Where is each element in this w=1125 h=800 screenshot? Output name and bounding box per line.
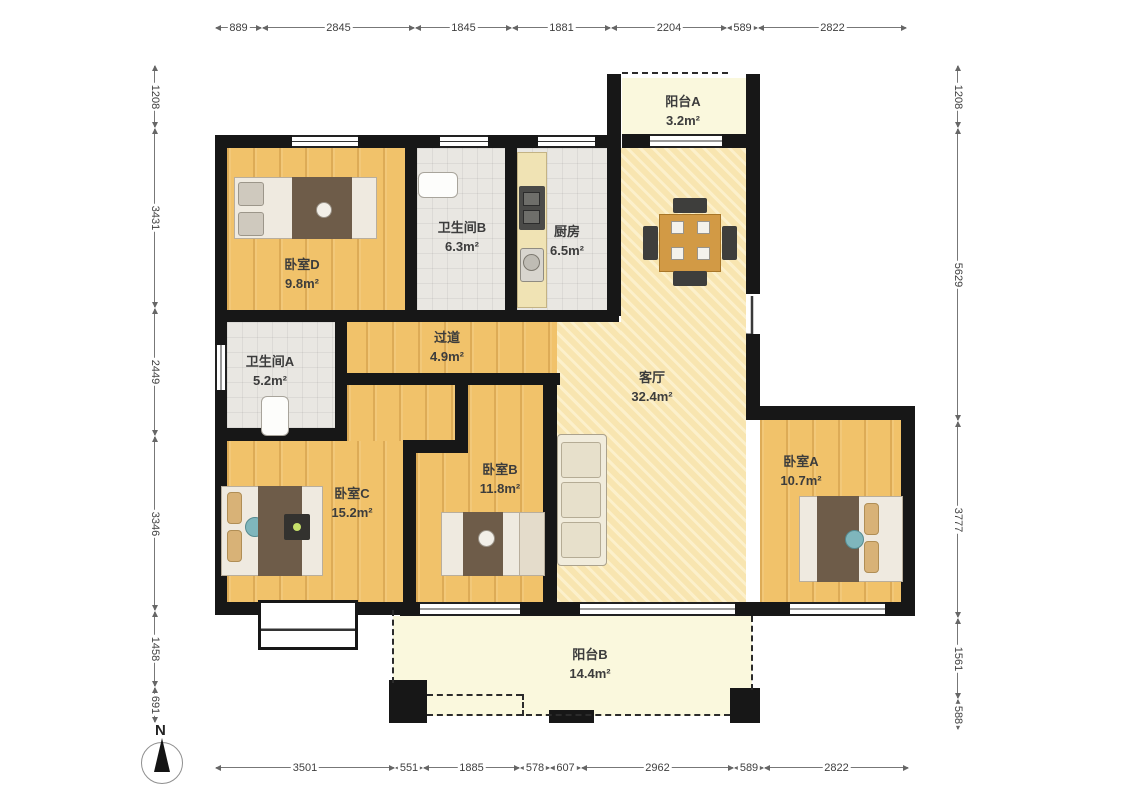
dimension-right-1561: 1561 [951,618,965,699]
window-balcony-a-slider [650,134,722,148]
dimension-bottom-1885: 1885 [423,761,520,775]
chair-icon [673,271,707,286]
dimension-value: 5629 [952,260,964,288]
dimension-value: 578 [524,762,546,774]
dimension-value: 3346 [149,509,161,537]
kitchen-counter [517,152,547,308]
room-area: 6.5m² [550,241,584,260]
floor-plan: N 阳台A3.2m²卧室D9.8m²卫生间B6.3m²厨房6.5m²过道4.9m… [0,0,1125,800]
dimension-bottom-2962: 2962 [581,761,734,775]
bay-window-bedroom-c [258,600,358,650]
wall [730,688,760,723]
railing-balcony-b-step [427,694,522,696]
wall [403,440,468,453]
dining-table [659,214,721,272]
wall [221,310,619,322]
dimension-value: 2822 [818,22,846,34]
railing-balcony-b-step [522,694,524,716]
room-label-kitchen: 厨房6.5m² [550,222,584,260]
dimension-value: 1885 [457,762,485,774]
dimension-bottom-3501: 3501 [215,761,395,775]
dot-icon [293,523,301,531]
room-name: 卧室D [284,255,319,274]
dimension-value: 691 [149,694,161,716]
dimension-left-3346: 3346 [148,436,162,611]
wall [746,74,760,294]
window-living-slider [580,602,735,616]
dimension-value: 1208 [149,82,161,110]
window-bedroom-b-bottom [420,602,520,616]
dimension-value: 589 [731,22,753,34]
dimension-top-2822: 2822 [758,21,907,35]
room-label-bedroom-a: 卧室A10.7m² [780,452,821,490]
dimension-value: 607 [554,762,576,774]
dimension-left-1208: 1208 [148,65,162,128]
room-name: 卫生间A [246,352,294,371]
room-area: 10.7m² [780,471,821,490]
room-area: 5.2m² [246,371,294,390]
dimension-value: 2449 [149,358,161,386]
room-name: 阳台A [665,92,700,111]
wall [901,406,915,616]
wall [505,148,517,316]
toilet-bathroom-a [261,396,289,436]
plate-icon [671,247,684,260]
room-name: 卫生间B [438,218,486,237]
wall [607,148,621,316]
sink-bowl-icon [523,254,540,271]
dimension-value: 1208 [952,82,964,110]
plate-icon [671,221,684,234]
room-name: 阳台B [569,645,610,664]
dimension-bottom-578: 578 [520,761,550,775]
dimension-bottom-2822: 2822 [764,761,909,775]
dimension-right-3777: 3777 [951,421,965,618]
wall [455,385,468,447]
dimension-value: 3431 [149,204,161,232]
room-area: 6.3m² [438,237,486,256]
wall [607,74,621,148]
dimension-value: 2845 [324,22,352,34]
plate-icon [697,247,710,260]
pillow-icon [227,492,242,524]
dimension-value: 589 [738,762,760,774]
dimension-left-691: 691 [148,687,162,723]
window-bathroom-a-left [215,345,227,390]
floor-bedroom-c [347,385,455,441]
room-label-living-room: 客厅32.4m² [631,368,672,406]
dimension-value: 551 [398,762,420,774]
dimension-value: 1561 [952,644,964,672]
railing-balcony-b-left [392,610,394,683]
room-area: 3.2m² [665,111,700,130]
sofa-cushion [561,482,601,518]
wall [389,680,427,723]
headboard-bedroom-b [519,512,545,576]
dimension-value: 889 [227,22,249,34]
room-area: 15.2m² [331,503,372,522]
room-area: 9.8m² [284,274,319,293]
wall [335,373,560,385]
room-name: 过道 [430,328,464,347]
dimension-value: 2822 [822,762,850,774]
window-top-bedroom-d [292,135,358,148]
wall [543,385,557,612]
chair-icon [673,198,707,213]
dimension-value: 3501 [291,762,319,774]
plate-icon [697,221,710,234]
dimension-top-2845: 2845 [262,21,415,35]
dimension-value: 3777 [952,505,964,533]
round-pillow-icon [845,530,864,549]
room-label-bedroom-c: 卧室C15.2m² [331,484,372,522]
room-area: 32.4m² [631,387,672,406]
dimension-value: 588 [952,703,964,725]
dimension-value: 1458 [149,635,161,663]
room-name: 客厅 [631,368,672,387]
dimension-top-2204: 2204 [611,21,727,35]
dimension-value: 1845 [449,22,477,34]
chair-icon [722,226,737,260]
room-area: 4.9m² [430,347,464,366]
dimension-left-2449: 2449 [148,308,162,436]
dimension-right-5629: 5629 [951,128,965,421]
room-label-bathroom-b: 卫生间B6.3m² [438,218,486,256]
dimension-left-3431: 3431 [148,128,162,308]
room-label-hallway: 过道4.9m² [430,328,464,366]
pillow-icon [864,503,879,535]
pillow-icon [238,212,264,236]
railing-balcony-b-right [751,616,753,690]
room-label-bathroom-a: 卫生间A5.2m² [246,352,294,390]
window-bedroom-a-bottom [790,602,885,616]
north-arrow-icon [154,738,170,772]
pillow-icon [238,182,264,206]
pillow-icon [227,530,242,562]
sofa-cushion [561,522,601,558]
room-name: 卧室C [331,484,372,503]
wall [405,148,417,316]
wall [746,406,915,420]
dimension-top-589: 589 [727,21,758,35]
room-area: 14.4m² [569,664,610,683]
burner-icon [523,192,540,206]
dimension-top-1881: 1881 [512,21,611,35]
dimension-value: 2962 [643,762,671,774]
wall [403,453,416,614]
dimension-left-1458: 1458 [148,611,162,687]
window-top-kitchen [538,135,595,148]
window-top-bathroom-b [440,135,488,148]
pillow-icon [864,541,879,573]
dimension-right-588: 588 [951,699,965,730]
room-name: 厨房 [550,222,584,241]
chair-icon [643,226,658,260]
compass-north-label: N [155,722,166,739]
room-name: 卧室B [480,460,520,479]
room-area: 11.8m² [480,479,520,498]
cushion-dot [478,530,495,547]
cushion-dot [316,202,332,218]
railing-balcony-b-bottom [427,714,730,716]
dimension-top-889: 889 [215,21,262,35]
sofa-cushion [561,442,601,478]
burner-icon [523,210,540,224]
dimension-top-1845: 1845 [415,21,512,35]
dimension-bottom-589: 589 [734,761,764,775]
dimension-value: 2204 [655,22,683,34]
room-name: 卧室A [780,452,821,471]
railing-balcony-a-top [622,72,728,74]
dimension-bottom-607: 607 [550,761,581,775]
dimension-right-1208: 1208 [951,65,965,128]
room-label-bedroom-b: 卧室B11.8m² [480,460,520,498]
dimension-value: 1881 [547,22,575,34]
room-label-balcony-a: 阳台A3.2m² [665,92,700,130]
room-label-balcony-b: 阳台B14.4m² [569,645,610,683]
washbasin-bathroom-b [418,172,458,198]
room-label-bedroom-d: 卧室D9.8m² [284,255,319,293]
dimension-bottom-551: 551 [395,761,423,775]
wall [549,710,594,723]
